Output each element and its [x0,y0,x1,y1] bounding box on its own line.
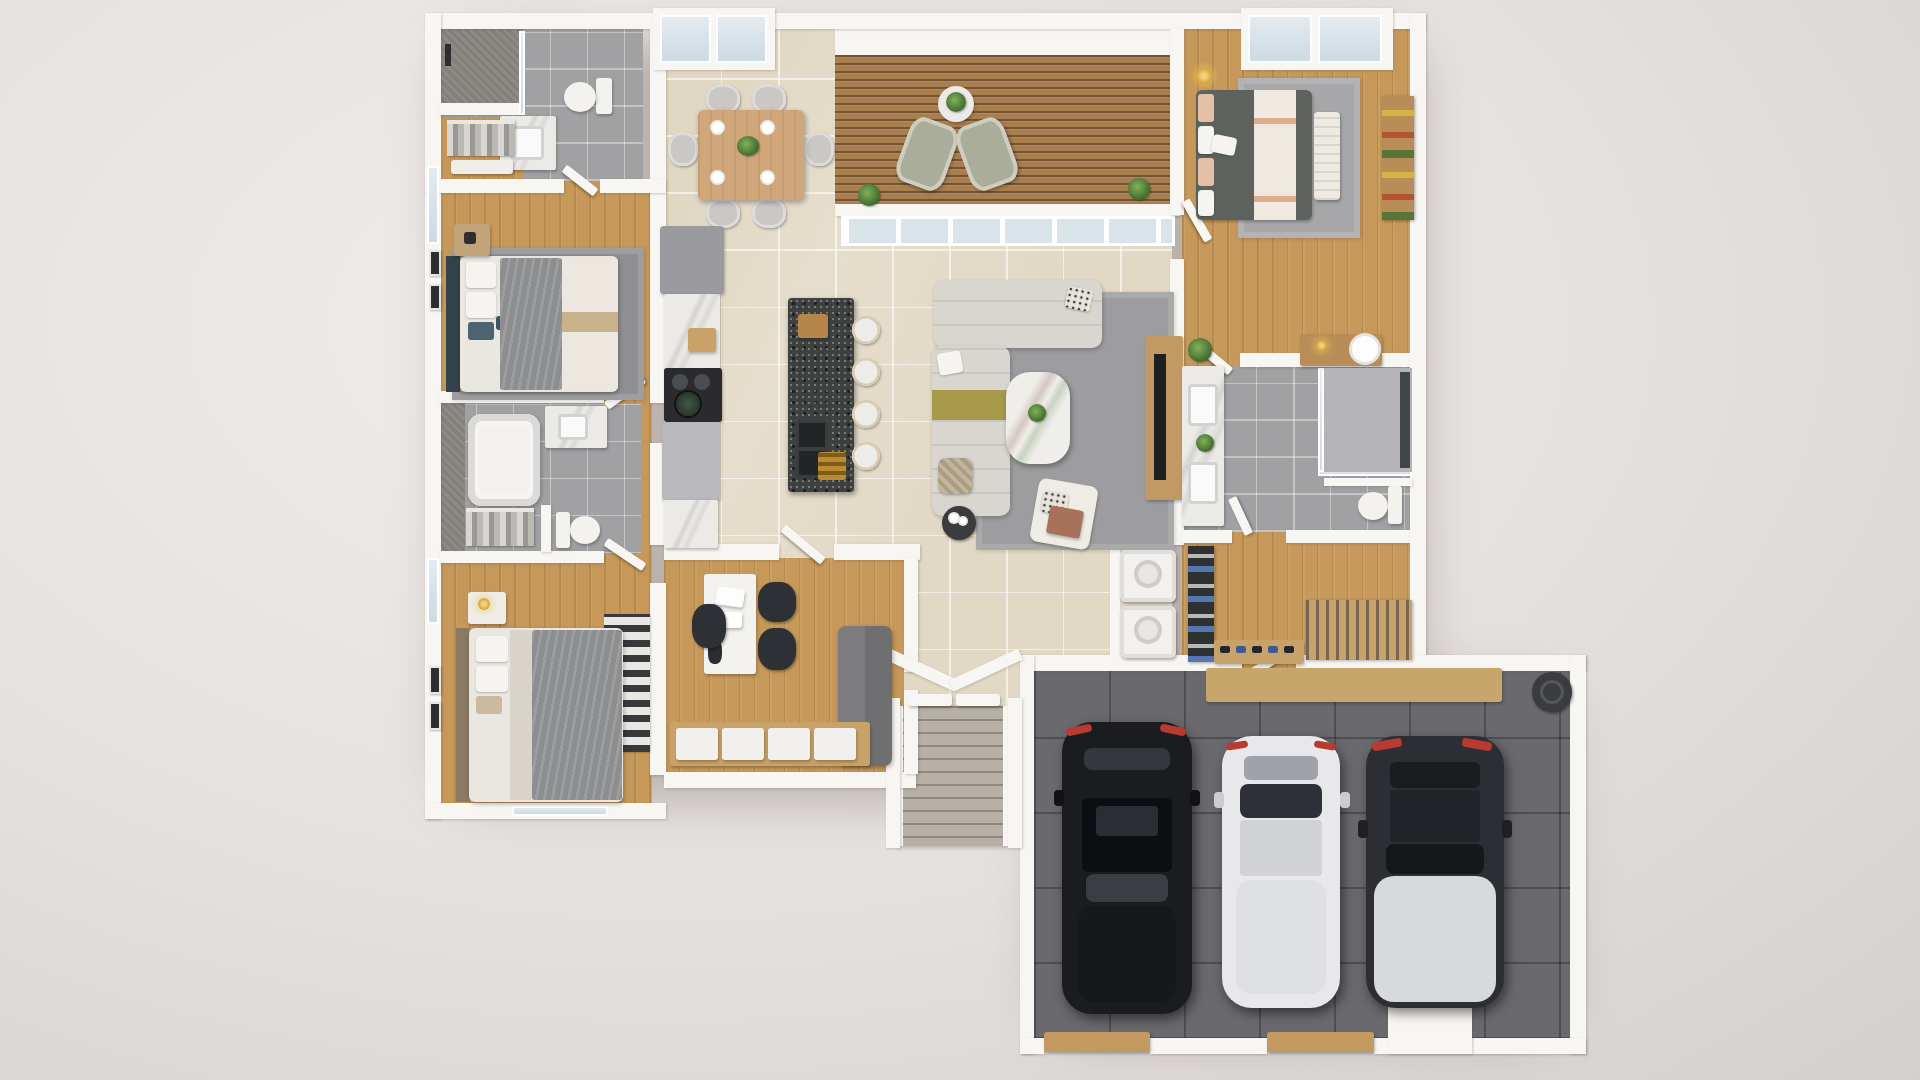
skylight-dining-pane-2 [716,15,767,63]
wall-bath-bed2 [439,551,604,563]
shoe-5 [1284,646,1294,653]
mudroom-closet-shelves [1188,546,1214,662]
master-pillow-peach-2 [1198,158,1214,186]
window-bedroom-2 [427,558,439,624]
bedroom1-headboard [446,256,460,392]
kitchen-counter-2 [664,500,718,548]
bedroom1-wall-frame-1 [429,250,441,276]
dining-plate-3 [712,172,723,183]
window-bedroom-2-south [512,806,608,816]
deck-table-plant [946,92,966,112]
master-pillow-peach-1 [1198,94,1214,122]
dining-chair-3 [706,198,740,228]
island-wine-rack [818,452,846,480]
shoe-1 [1220,646,1230,653]
island-sink-divider [796,447,828,451]
sink-middle-bath [558,414,588,440]
wall-bath-tl-bottom-a [425,179,564,193]
tv-screen [1154,354,1166,480]
stove-pot [676,392,700,416]
bedroom1-wall-frame-2 [429,284,441,310]
fridge [660,226,724,294]
dining-chair-6 [804,132,834,166]
bedroom1-pillow-2 [466,292,496,318]
wall-mid-closet-divider [541,505,551,552]
toilet-tl-bowl [564,82,596,112]
living-pouf [938,458,972,494]
master-dresser-lamp [1316,340,1327,351]
office-chair-1 [758,582,796,622]
wall-office-right-a [904,558,918,672]
window-band-deck [841,216,1175,246]
wall-outer-left [425,13,441,819]
wall-garage-bottom-b [1150,1038,1267,1054]
island-cutting-board [798,314,828,338]
master-sink-1 [1188,384,1218,426]
master-bench [1314,112,1340,200]
side-table-dish-2 [960,518,966,524]
closet-clothes-middle [466,508,534,546]
living-side-table [942,506,976,540]
bedroom1-duvet-band [562,312,618,332]
dining-plate-4 [762,172,773,183]
bar-stool-2 [852,358,880,386]
wall-bath-mudroom-b [1286,530,1412,543]
glass-shower-top-left [519,31,525,115]
floor-plan-render [0,0,1920,1080]
bedroom1-nightstand-decor [464,232,476,244]
side-table-dish-1 [950,514,958,522]
dining-plate-1 [712,122,723,133]
wall-garage-right [1570,655,1586,1054]
skylight-master-pane-2 [1318,15,1382,63]
car-gray-mirror-right [1502,820,1512,838]
car-white-roof [1240,820,1322,876]
coffee-table-plant [1028,404,1046,422]
toilet-mid-tank [556,512,570,548]
car-white-hood [1236,880,1326,994]
car-gray-roof [1390,790,1480,842]
wall-closet-tl-divider [439,103,523,115]
credenza-door-2 [722,728,764,760]
wall-deck-bottom [835,204,1180,216]
stove-burner-2 [694,374,710,390]
wall-garage-bottom-a [1020,1038,1044,1054]
strip-concrete-middle-bath [439,403,465,553]
master-sink-2 [1188,462,1218,504]
sink-top-left [510,126,544,160]
bar-stool-3 [852,400,880,428]
master-vanity-plant [1196,434,1214,452]
car-black-sunroof [1096,806,1158,836]
car-gray-windshield [1386,844,1484,874]
shoe-4 [1268,646,1278,653]
bedroom2-lamp [478,598,490,610]
washer-door [1134,560,1162,588]
accent-chair-cushion [1046,505,1084,538]
skylight-dining-pane-1 [660,15,711,63]
stove-burner-1 [672,374,688,390]
car-gray-rear-window [1390,762,1480,788]
car-white-rear-window [1244,756,1318,780]
kitchen-cutting-board [688,328,716,352]
wall-deck-top [835,27,1180,55]
sofa-pillow-2 [936,350,963,376]
bedroom2-pillow-2 [476,666,508,692]
car-black-mirror-left [1054,790,1064,806]
bedroom2-blanket [532,630,622,800]
car-black-windshield [1086,874,1168,902]
credenza-door-3 [768,728,810,760]
dining-plate-2 [762,122,773,133]
wall-garage-notch [1388,1002,1472,1054]
bedroom1-pillow-blue-1 [468,322,494,340]
mudroom-cabinet [1306,600,1412,660]
master-shower-floor [1324,368,1412,472]
master-toilet-bowl [1358,492,1388,520]
garage-storage-shelf [1206,668,1502,702]
wall-washer-nook [1110,545,1120,659]
plant-bath-corner [1188,338,1212,362]
office-monitor [715,586,745,608]
credenza-door-4 [814,728,856,760]
car-white-windshield [1240,784,1322,818]
office-chair-3 [692,604,726,648]
toilet-mid-bowl [570,516,600,544]
car-white-mirror-left [1214,792,1224,808]
toilet-tl-tank [596,78,612,114]
master-lamp [1196,68,1212,84]
bedroom1-pillow-1 [466,262,496,288]
shower-fixture-tl [445,44,451,66]
wall-master-toilet-divider [1324,478,1412,486]
wall-left-center-c [650,583,666,775]
car-black-rear-window [1084,748,1170,770]
car-black-hood [1078,906,1176,1002]
bar-stool-4 [852,442,880,470]
wall-bath-mudroom-a [1182,530,1232,543]
closet-clothes-top-left [447,120,515,156]
shoe-3 [1252,646,1262,653]
shoe-2 [1236,646,1246,653]
dryer-door [1134,616,1162,644]
bathtub [468,414,540,506]
skylight-master-pane-1 [1248,15,1312,63]
master-runner-stripe-1 [1254,118,1296,124]
closet-shelf-top-left [451,160,513,174]
car-white-mirror-right [1340,792,1350,808]
kitchen-tall-cabinet [662,422,720,500]
front-door-left [908,694,952,706]
bedroom2-headboard [456,628,469,802]
sofa-gold-throw [932,390,1010,420]
bedroom2-pillow-1 [476,636,508,662]
master-wardrobe-shelves [1382,96,1414,220]
master-runner-stripe-2 [1254,196,1296,202]
master-shower-panel [1400,372,1410,468]
bedroom1-blanket [500,258,562,390]
garage-door-strip-2 [1267,1032,1374,1052]
wall-bath-tl-bottom-b [600,179,666,193]
wall-entry-right [1008,698,1022,848]
car-gray-hood [1374,876,1496,1002]
dining-chair-4 [752,198,786,228]
master-pillow-white-2 [1198,190,1214,216]
garage-wall-disc-ring [1540,680,1564,704]
bedroom2-wall-frame-1 [429,666,441,694]
bedroom2-pillow-tan [476,696,502,714]
office-chair-2 [758,628,796,670]
bedroom2-wall-frame-2 [429,702,441,730]
wall-garage-left [1020,655,1034,1054]
deck-plant-left [858,184,880,206]
car-gray-mirror-left [1358,820,1368,838]
front-door-right [956,694,1000,706]
bedroom2-sheet [510,630,532,800]
dining-centerpiece-flowers [737,136,759,156]
deck-plant-right [1128,178,1150,200]
window-bedroom-1 [427,166,439,244]
garage-door-strip-1 [1044,1032,1150,1052]
car-black-mirror-right [1190,790,1200,806]
dining-chair-5 [668,132,698,166]
wall-office-bottom [664,772,916,788]
credenza-door-1 [676,728,718,760]
bar-stool-1 [852,316,880,344]
master-toilet-tank [1388,486,1402,524]
master-dresser-mirror [1352,336,1378,362]
wall-living-master-a [1170,29,1184,215]
